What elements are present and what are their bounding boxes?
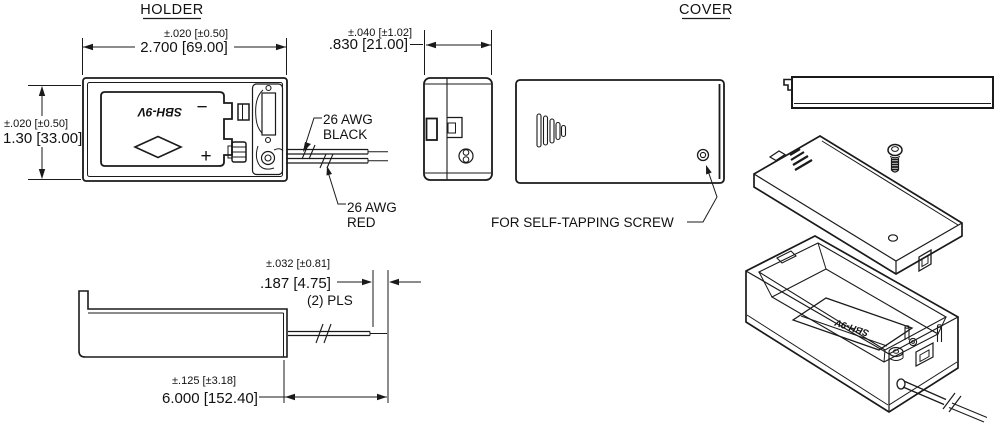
width-dimension: ±.020 [±0.50] 2.700 [69.00] xyxy=(83,28,287,75)
terminal-slot xyxy=(262,93,276,135)
wire-red-line1: 26 AWG xyxy=(347,200,397,215)
wire-black-line1: 26 AWG xyxy=(323,112,373,127)
iso-cover-screw-hole xyxy=(889,235,898,241)
iso-battery-marking: SBH-9V xyxy=(833,316,870,338)
strip-tolerance: ±.032 [±0.81] xyxy=(266,258,330,270)
screw-note: FOR SELF-TAPPING SCREW xyxy=(491,165,717,230)
leader-arrow xyxy=(303,142,311,152)
terminal-compartment xyxy=(253,84,284,175)
grip-lines xyxy=(537,114,566,147)
cover-flat-view xyxy=(516,80,724,183)
width-value: 2.700 [69.00] xyxy=(140,39,228,56)
screw-threads xyxy=(891,160,899,170)
depth-value: .830 [21.00] xyxy=(329,36,408,53)
iso-latch-slot xyxy=(777,251,796,263)
plus-sign: + xyxy=(200,146,211,167)
leader-arrow xyxy=(327,166,333,176)
wire-length: 6.000 [152.40] xyxy=(162,390,258,407)
profile-wire xyxy=(288,324,387,343)
battery-outline xyxy=(101,92,232,166)
screw-boss xyxy=(262,152,275,165)
interior-floor xyxy=(772,269,938,362)
screw-note-text: FOR SELF-TAPPING SCREW xyxy=(491,215,674,230)
drawing-svg: HOLDER ±.020 [±0.50] 2.700 [69.00] ±.020… xyxy=(0,0,1000,423)
depth-dimension: ±.040 [±1.02] .830 [21.00] xyxy=(329,27,492,75)
diamond-symbol xyxy=(135,137,181,158)
battery-marking: SBH-9V xyxy=(137,105,182,119)
cover-screw-hole xyxy=(698,150,709,161)
strip-places: (2) PLS xyxy=(307,293,353,308)
iso-battery: SBH-9V xyxy=(793,298,912,350)
strip-length: .187 [4.75] xyxy=(260,275,331,292)
engineering-drawing: HOLDER ±.020 [±0.50] 2.700 [69.00] ±.020… xyxy=(0,0,1000,423)
side-screw-hole xyxy=(459,149,473,163)
arrow-right xyxy=(276,44,286,50)
arrow-down xyxy=(39,169,45,179)
iso-grip-lines xyxy=(790,149,812,170)
wires xyxy=(286,145,388,168)
holder-iso-view: SBH-9V xyxy=(746,236,987,422)
height-dimension: ±.020 [±0.50] 1.30 [33.00] xyxy=(3,86,82,180)
cover-title: COVER xyxy=(679,2,733,18)
screw-iso xyxy=(888,145,902,173)
wire-label-red: 26 AWG RED xyxy=(327,166,397,230)
wire-red-line2: RED xyxy=(347,215,376,230)
wire-label-black: 26 AWG BLACK xyxy=(303,112,373,152)
negative-snap xyxy=(238,104,249,120)
edge-hook xyxy=(784,80,792,91)
iso-cover-left-tab xyxy=(770,151,785,161)
holder-title: HOLDER xyxy=(140,2,203,18)
holder-side-view xyxy=(424,78,492,180)
iso-wall-latch xyxy=(916,343,933,366)
cover-edge-view xyxy=(784,77,993,108)
wire-break-marks xyxy=(302,145,333,168)
wire-length-dimension: ±.125 [±3.18] 6.000 [152.40] xyxy=(162,360,387,407)
positive-snap xyxy=(228,142,246,162)
height-value: 1.30 [33.00] xyxy=(3,130,82,147)
side-tab xyxy=(427,119,438,141)
holder-section: HOLDER ±.020 [±0.50] 2.700 [69.00] ±.020… xyxy=(3,2,492,407)
leader-arrow xyxy=(706,165,712,175)
wire-tolerance: ±.125 [±3.18] xyxy=(172,375,236,387)
iso-wire xyxy=(897,379,987,422)
minus-sign: − xyxy=(196,97,207,118)
wire-black-line2: BLACK xyxy=(323,127,367,142)
arrow-left xyxy=(83,44,93,50)
cover-section: COVER FOR SELF-TAPPING SCREW xyxy=(491,2,993,422)
side-notch xyxy=(447,118,462,138)
height-tolerance: ±.020 [±0.50] xyxy=(4,118,68,130)
arrow-up xyxy=(39,86,45,96)
